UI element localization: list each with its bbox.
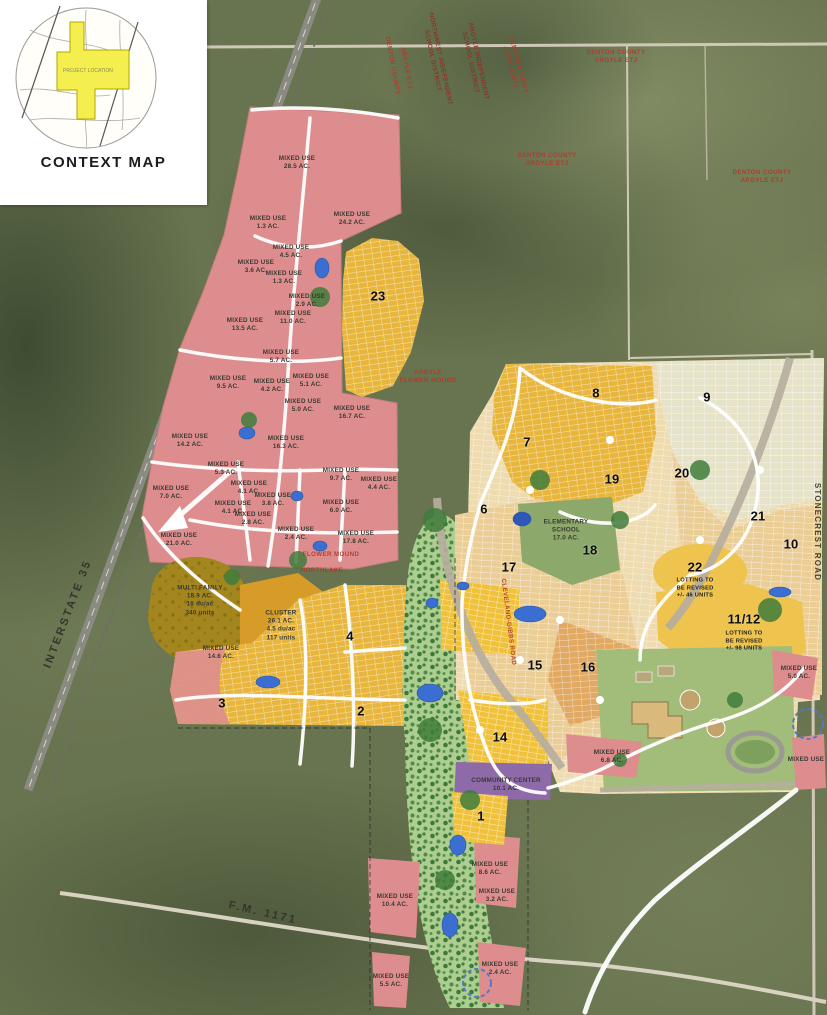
project-location-label: PROJECT LOCATION bbox=[60, 68, 116, 74]
master-plan-map: MIXED USE28.5 AC.MIXED USE24.2 AC.MIXED … bbox=[0, 0, 827, 1015]
context-map-title: CONTEXT MAP bbox=[0, 155, 207, 170]
mixed-use-se-site bbox=[792, 734, 826, 790]
context-map-graphic bbox=[0, 0, 207, 155]
context-map: PROJECT LOCATION CONTEXT MAP bbox=[0, 0, 207, 205]
phase-23-lots bbox=[342, 238, 424, 397]
